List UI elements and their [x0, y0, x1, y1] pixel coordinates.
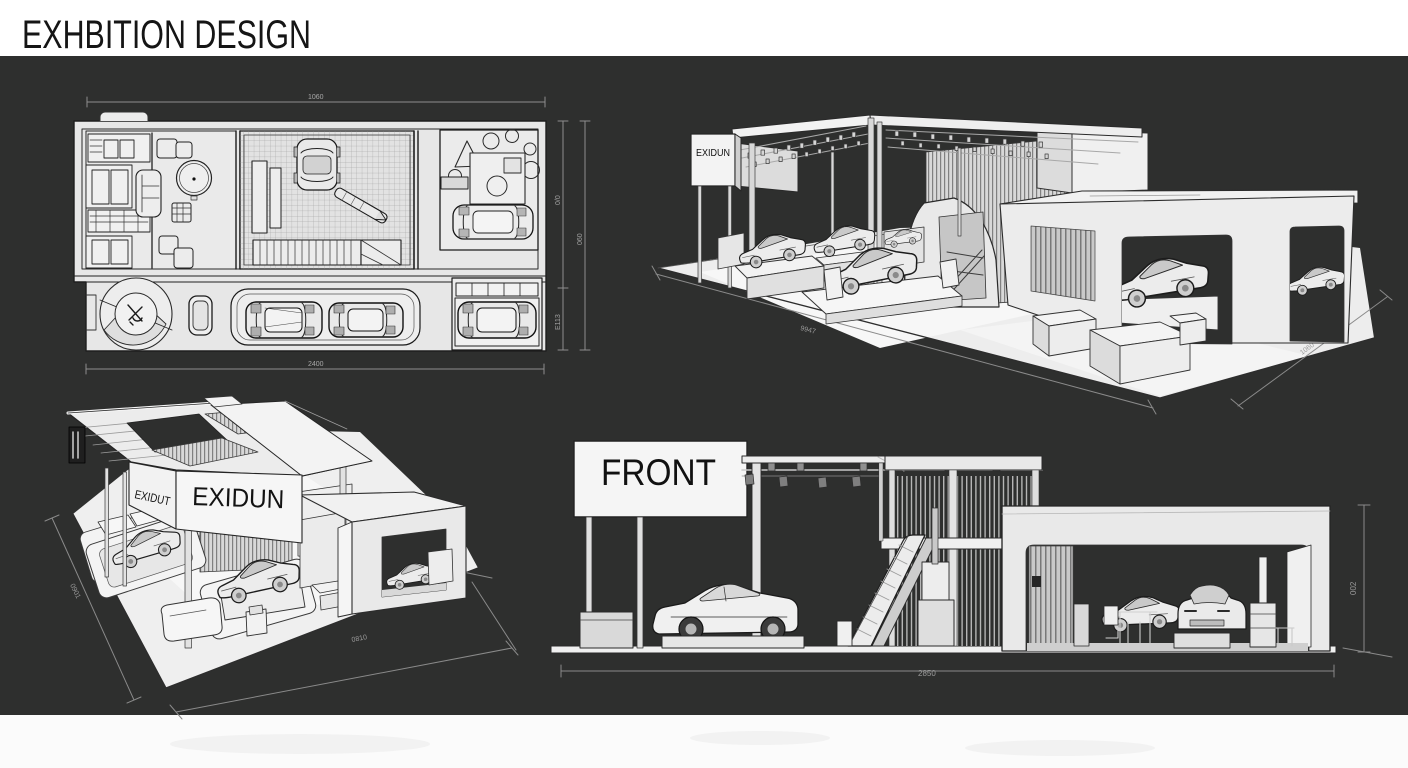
svg-text:EXHBITION DESIGN: EXHBITION DESIGN [22, 13, 311, 57]
svg-text:EXIDUN: EXIDUN [192, 481, 285, 514]
svg-text:002: 002 [1349, 581, 1358, 595]
svg-text:1060: 1060 [308, 94, 324, 101]
svg-text:EXIDUN: EXIDUN [696, 148, 730, 159]
svg-text:060: 060 [577, 233, 584, 245]
svg-text:2850: 2850 [918, 669, 936, 678]
svg-text:FRONT: FRONT [601, 452, 716, 493]
svg-text:E113: E113 [555, 314, 562, 330]
svg-text:2400: 2400 [308, 361, 324, 368]
svg-text:0/0: 0/0 [555, 195, 562, 205]
